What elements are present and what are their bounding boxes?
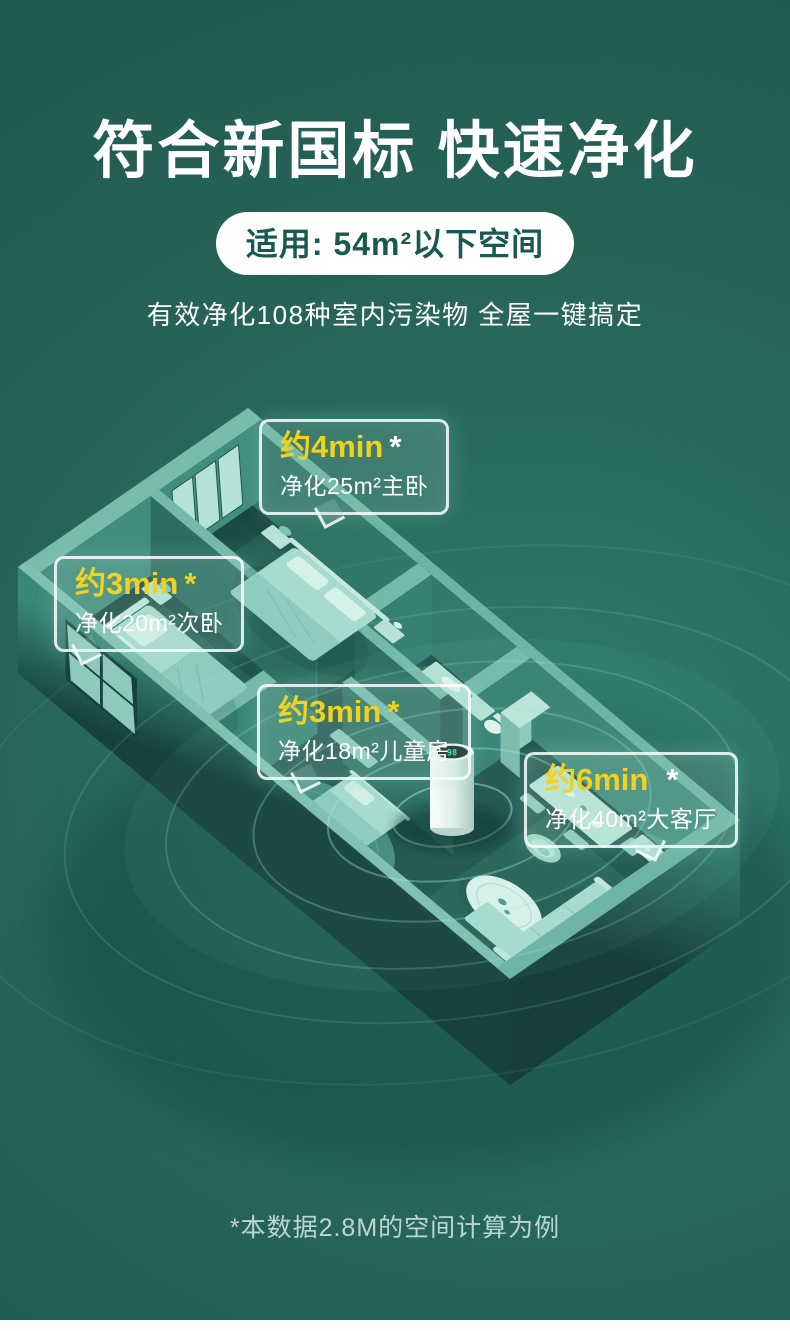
callout-master-bedroom: 约4min* 净化25m²主卧 <box>259 419 449 515</box>
callout-time: 约6min* <box>545 764 717 797</box>
time-label: 约4min <box>280 429 383 464</box>
footnote: *本数据2.8M的空间计算为例 <box>0 1208 790 1244</box>
callout-children-room: 约3min* 净化18m²儿童房 <box>257 684 471 780</box>
callout-second-bedroom: 约3min* 净化20m²次卧 <box>54 556 244 652</box>
time-label: 约6min <box>545 762 648 797</box>
callout-mark-1: * <box>184 566 196 601</box>
applicable-area-badge: 适用: 54m²以下空间 <box>216 212 574 275</box>
header: 符合新国标 快速净化 适用: 54m²以下空间 有效净化108种室内污染物 全屋… <box>0 100 790 332</box>
callout-room-label: 净化25m²主卧 <box>280 467 428 501</box>
bottom-strip <box>0 1320 790 1331</box>
time-label: 约3min <box>75 566 178 601</box>
callout-mark-0: * <box>389 429 401 464</box>
page-title: 符合新国标 快速净化 <box>0 100 790 190</box>
callout-room-label: 净化20m²次卧 <box>75 604 223 638</box>
page: 98 符合新国标 快速净化 适用: 54m²以下空间 有效净化108种室内污染物… <box>0 0 790 1331</box>
callout-time: 约3min* <box>278 696 450 729</box>
callout-room-label: 净化18m²儿童房 <box>278 732 450 766</box>
time-label: 约3min <box>278 694 381 729</box>
subtitle: 有效净化108种室内污染物 全屋一键搞定 <box>0 295 790 332</box>
callout-room-label: 净化40m²大客厅 <box>545 800 717 834</box>
callout-time: 约3min* <box>75 568 223 601</box>
callout-mark-3: * <box>666 762 678 797</box>
callout-mark-2: * <box>387 694 399 729</box>
callout-time: 约4min* <box>280 431 428 464</box>
callout-living-room: 约6min* 净化40m²大客厅 <box>524 752 738 848</box>
